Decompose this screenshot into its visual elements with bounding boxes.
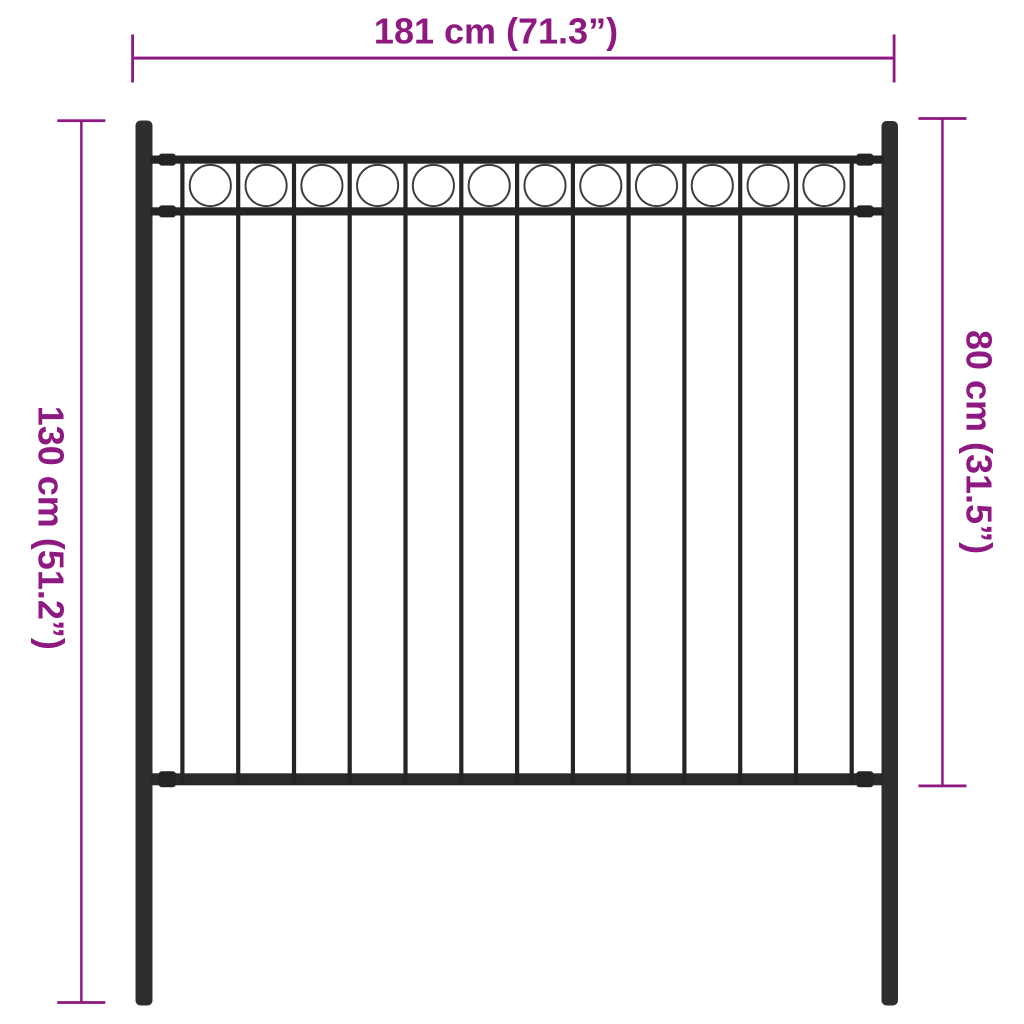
- svg-text:130 cm (51.2”): 130 cm (51.2”): [31, 406, 72, 650]
- svg-text:181 cm (71.3”): 181 cm (71.3”): [374, 11, 618, 52]
- svg-text:80 cm (31.5”): 80 cm (31.5”): [958, 330, 999, 554]
